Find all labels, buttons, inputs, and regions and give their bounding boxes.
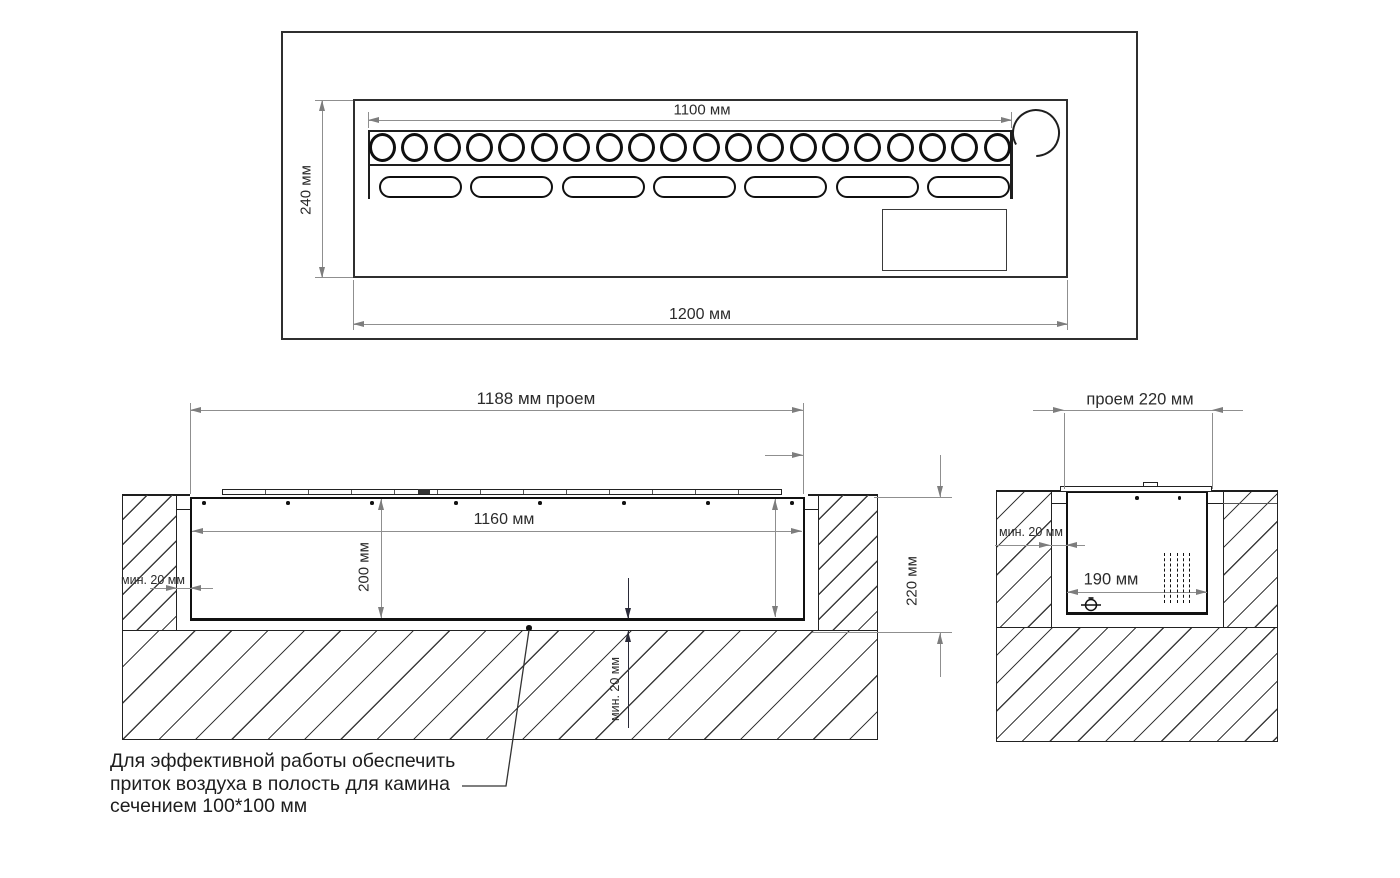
rabbet-ledge bbox=[1208, 503, 1223, 504]
burner-hole bbox=[693, 133, 720, 162]
burner-hole bbox=[466, 133, 493, 162]
slot-row bbox=[379, 176, 1010, 198]
hatched-wall-left-side bbox=[997, 492, 1052, 628]
rabbet-ledge bbox=[1052, 503, 1066, 504]
dim-label-190: 190 мм bbox=[1084, 571, 1139, 590]
burner-holes-row bbox=[369, 133, 1011, 162]
burner-slot bbox=[744, 176, 827, 198]
burner-slot bbox=[836, 176, 919, 198]
dim-label-220: 220 мм bbox=[904, 556, 921, 606]
screw-dot bbox=[538, 501, 542, 505]
arrowhead bbox=[625, 608, 631, 619]
arrowhead bbox=[792, 407, 803, 413]
screw-dot bbox=[622, 501, 626, 505]
control-box bbox=[882, 209, 1007, 271]
dim-label-1100: 1100 мм bbox=[673, 102, 730, 119]
burner-hole bbox=[563, 133, 590, 162]
arrowhead bbox=[190, 407, 201, 413]
grill-bar bbox=[1164, 553, 1165, 603]
burner-tray-mid-line bbox=[368, 164, 1012, 166]
dim-label-200: 200 мм bbox=[356, 542, 373, 592]
dim-label-opening-side: проем 220 мм bbox=[1086, 391, 1193, 410]
dim-ext bbox=[1212, 413, 1213, 489]
note-line-2: приток воздуха в полость для камина bbox=[110, 773, 455, 796]
burner-hole bbox=[725, 133, 752, 162]
burner-tray-top-line bbox=[368, 130, 1012, 132]
burner-hole bbox=[984, 133, 1011, 162]
burner-hole bbox=[822, 133, 849, 162]
dim-label-opening-front: 1188 мм проем bbox=[477, 389, 596, 409]
hatched-slab-side bbox=[997, 627, 1277, 741]
screw-dot bbox=[286, 501, 290, 505]
dim-label-side-gap-side: мин. 20 мм bbox=[999, 525, 1063, 539]
burner-hole bbox=[531, 133, 558, 162]
screw-dot bbox=[706, 501, 710, 505]
dim-line-side-gap bbox=[150, 588, 213, 589]
arrowhead bbox=[625, 631, 631, 642]
dim-line-1100 bbox=[368, 120, 1012, 121]
technical-drawing-fireplace-installation: 1100 мм 240 мм 1200 мм bbox=[0, 0, 1400, 878]
screw-dots-side bbox=[1135, 496, 1181, 500]
arrowhead bbox=[791, 528, 802, 534]
burner-hole bbox=[790, 133, 817, 162]
burner-slot bbox=[562, 176, 645, 198]
top-plate-mark bbox=[418, 489, 430, 494]
grill-bar bbox=[1170, 553, 1171, 603]
arrowhead bbox=[772, 499, 778, 510]
screw-dot bbox=[370, 501, 374, 505]
insert-top-plate-side bbox=[1060, 486, 1212, 492]
air-grill bbox=[1164, 553, 1190, 603]
arrowhead bbox=[1212, 407, 1223, 413]
knob-circle-icon bbox=[1008, 105, 1064, 161]
burner-hole bbox=[596, 133, 623, 162]
burner-hole bbox=[951, 133, 978, 162]
dim-label-1200: 1200 мм bbox=[669, 306, 731, 324]
burner-slot bbox=[653, 176, 736, 198]
arrowhead bbox=[1066, 542, 1077, 548]
grill-bar bbox=[1183, 553, 1184, 603]
grill-bar bbox=[1189, 553, 1190, 603]
dim-label-bottom-gap: мин. 20 мм bbox=[608, 657, 622, 721]
arrowhead bbox=[368, 117, 379, 123]
screw-dot bbox=[1135, 496, 1139, 500]
arrowhead bbox=[1053, 407, 1064, 413]
hatched-wall-right-side bbox=[1223, 492, 1277, 628]
arrowhead bbox=[772, 606, 778, 617]
screw-dot bbox=[202, 501, 206, 505]
insert-top-plate bbox=[222, 489, 782, 495]
screw-dots-front bbox=[202, 501, 794, 505]
burner-hole bbox=[498, 133, 525, 162]
top-plate-notch bbox=[1143, 482, 1158, 487]
dim-label-240: 240 мм bbox=[298, 165, 315, 215]
arrowhead bbox=[1039, 542, 1050, 548]
dim-line-bottom-gap bbox=[628, 631, 629, 728]
arrowhead bbox=[1067, 589, 1078, 595]
burner-slot bbox=[470, 176, 553, 198]
note-line-1: Для эффективной работы обеспечить bbox=[110, 750, 455, 773]
rabbet-ledge bbox=[177, 509, 191, 510]
burner-hole bbox=[887, 133, 914, 162]
burner-hole bbox=[401, 133, 428, 162]
leader-line bbox=[460, 628, 540, 790]
hatched-wall-left bbox=[123, 495, 177, 631]
arrowhead bbox=[937, 486, 943, 497]
depth-extent-line-right bbox=[775, 499, 776, 617]
burner-hole bbox=[434, 133, 461, 162]
dim-line-1160 bbox=[192, 531, 802, 532]
dim-line-1200 bbox=[353, 324, 1068, 325]
screw-dot bbox=[790, 501, 794, 505]
arrowhead bbox=[378, 499, 384, 510]
dim-ext bbox=[803, 403, 804, 494]
arrowhead bbox=[1196, 589, 1207, 595]
arrowhead bbox=[1057, 321, 1068, 327]
dim-ext bbox=[874, 497, 952, 498]
arrowhead bbox=[792, 452, 803, 458]
arrowhead bbox=[166, 585, 177, 591]
burner-hole bbox=[919, 133, 946, 162]
burner-hole bbox=[854, 133, 881, 162]
dim-line-1188 bbox=[190, 410, 803, 411]
arrowhead bbox=[378, 607, 384, 618]
arrowhead bbox=[319, 100, 325, 111]
note-line-3: сечением 100*100 мм bbox=[110, 795, 455, 818]
air-supply-note: Для эффективной работы обеспечить приток… bbox=[110, 750, 455, 818]
arrowhead bbox=[319, 267, 325, 278]
burner-slot bbox=[927, 176, 1010, 198]
burner-slot bbox=[379, 176, 462, 198]
dim-line-200 bbox=[381, 499, 382, 618]
dim-ext bbox=[190, 403, 191, 494]
arrowhead bbox=[190, 585, 201, 591]
dim-label-1160: 1160 мм bbox=[474, 511, 535, 529]
burner-hole bbox=[660, 133, 687, 162]
grill-bar bbox=[1177, 553, 1178, 603]
gas-valve-icon bbox=[1079, 595, 1103, 613]
ledge-ext-line bbox=[1223, 503, 1277, 504]
burner-hole bbox=[757, 133, 784, 162]
rabbet-ledge bbox=[804, 509, 818, 510]
burner-hole bbox=[628, 133, 655, 162]
hatched-wall-right bbox=[818, 495, 877, 631]
screw-dot bbox=[454, 501, 458, 505]
screw-dot bbox=[1178, 496, 1182, 500]
dim-line-240 bbox=[322, 100, 323, 278]
arrowhead bbox=[192, 528, 203, 534]
dim-ext bbox=[812, 632, 952, 633]
dim-ext bbox=[1064, 413, 1065, 489]
burner-hole bbox=[369, 133, 396, 162]
arrowhead bbox=[937, 633, 943, 644]
arrowhead bbox=[353, 321, 364, 327]
